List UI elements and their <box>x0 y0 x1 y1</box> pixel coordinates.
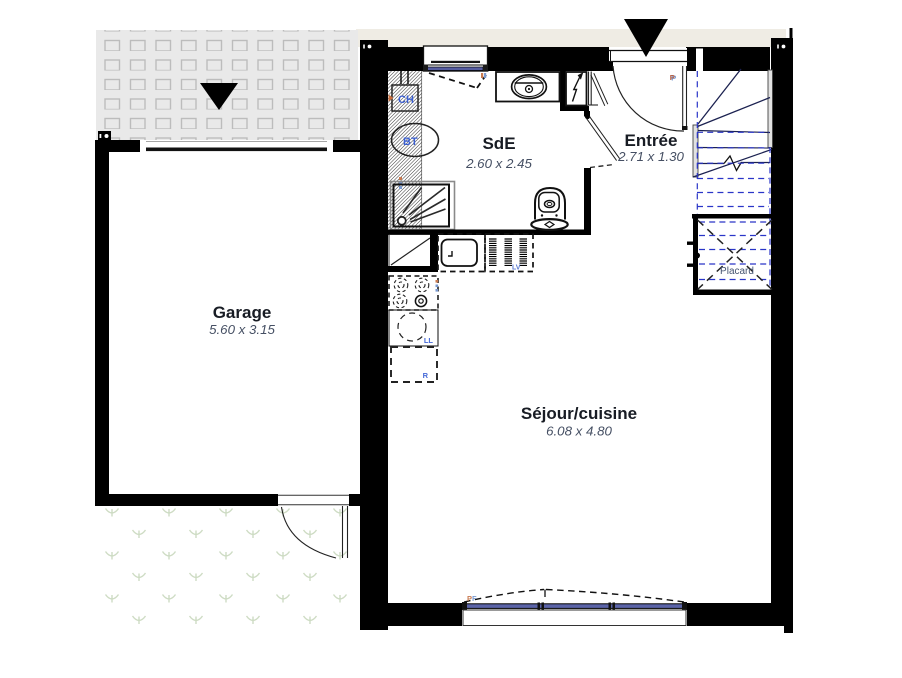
svg-text:BT: BT <box>403 136 418 148</box>
svg-text:CH: CH <box>398 94 414 106</box>
svg-text:LV: LV <box>512 265 521 272</box>
svg-text:2.60 x 2.45: 2.60 x 2.45 <box>465 156 532 171</box>
svg-text:SdE: SdE <box>482 134 515 153</box>
svg-text:2.71 x 1.30: 2.71 x 1.30 <box>617 149 684 164</box>
svg-text:LL: LL <box>424 336 434 345</box>
svg-text:PF: PF <box>467 594 477 603</box>
svg-text:R: R <box>423 371 429 380</box>
svg-text:6.08 x 4.80: 6.08 x 4.80 <box>546 424 612 439</box>
svg-text:Garage: Garage <box>213 303 272 322</box>
svg-text:Entrée: Entrée <box>625 131 678 150</box>
svg-text:Placard: Placard <box>720 266 754 277</box>
svg-text:Séjour/cuisine: Séjour/cuisine <box>521 404 637 423</box>
svg-text:5.60 x 3.15: 5.60 x 3.15 <box>209 322 275 337</box>
svg-text:P: P <box>670 73 675 82</box>
